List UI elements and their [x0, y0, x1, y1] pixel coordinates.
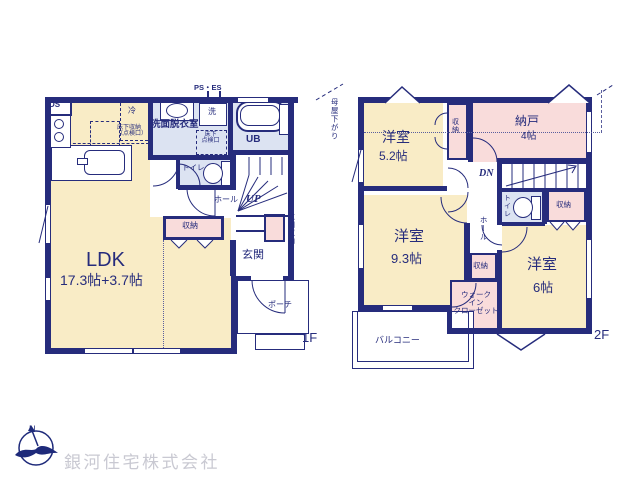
- stairs-down-label: DN: [479, 169, 493, 180]
- entrance-storage-label: 玄関収納: [287, 213, 295, 245]
- bedroom6-size-label: 6帖: [533, 281, 553, 295]
- closet52-label: 収納: [451, 118, 459, 134]
- door-arc-washroom: [153, 160, 179, 186]
- washroom-label: 洗面脱衣室: [151, 120, 199, 130]
- toilet-1f-label: トイレ: [182, 164, 205, 172]
- closet-2f-hall-label: 収納: [473, 262, 488, 270]
- bedroom52-size-label: 5.2帖: [379, 150, 408, 163]
- bath-label: UB: [246, 135, 260, 146]
- door-arc-vestibule-up: [448, 168, 468, 188]
- door-arc-bedroom93: [441, 197, 467, 223]
- corner-window-mark-1f: [39, 206, 48, 243]
- compass-north-label: N: [29, 424, 36, 434]
- closet-1f-label: 収納: [182, 222, 198, 231]
- bedroom93-label: 洋室: [394, 229, 424, 245]
- underfloor-storage-line2: （点検口）: [117, 131, 147, 137]
- company-name: 銀河住宅株式会社: [64, 448, 220, 473]
- floor-plan: N DS 冷 床下収納 （点検口） PS・ES 洗面脱衣室 洗 床下 点検口 U…: [0, 0, 640, 480]
- underfloor-hatch-line2: 点検口: [196, 138, 225, 144]
- roof-window-mark: [497, 334, 545, 350]
- closet-arc-52b: [435, 137, 447, 149]
- underfloor-storage-label: 床下収納 （点検口）: [117, 125, 147, 138]
- roof-window-mark: [385, 87, 420, 103]
- underfloor-hatch-label: 床下 点検口: [196, 132, 225, 145]
- floor1-label: 1F: [302, 331, 317, 345]
- storage-room-label: 納戸: [515, 115, 539, 128]
- stairs-2f: [506, 163, 578, 188]
- ldk-size-label: 17.3帖+3.7帖: [60, 273, 143, 288]
- bedroom6-label: 洋室: [527, 257, 557, 273]
- door-arc-ldk-hall: [187, 188, 215, 216]
- closet-door-mark: [566, 222, 580, 230]
- toilet-2f-label: トイレ: [503, 194, 511, 218]
- ds-label: DS: [49, 101, 60, 110]
- corner-window-mark-2f: [352, 150, 361, 182]
- wic-label: ウォーク イン クローゼット: [448, 291, 504, 315]
- balcony-label: バルコニー: [375, 336, 420, 346]
- toilet-bowl-2f: [513, 197, 533, 218]
- stairs-up-label: UP: [246, 194, 261, 206]
- washer-label: 洗: [208, 108, 216, 117]
- closet-door-mark: [171, 240, 187, 248]
- door-arc-nando: [473, 138, 497, 162]
- compass-logo: N: [15, 424, 58, 465]
- ps-es-label: PS・ES: [194, 84, 222, 92]
- wic-line3: クローゼット: [448, 307, 504, 315]
- porch-label: ポーチ: [268, 301, 292, 310]
- closet-arc-52a: [435, 113, 447, 125]
- door-arc-bedroom6: [502, 227, 527, 252]
- refrigerator-label: 冷: [128, 107, 136, 116]
- ldk-label: LDK: [86, 250, 125, 272]
- closet-door-mark: [197, 240, 213, 248]
- entrance-label: 玄関: [242, 250, 264, 262]
- hall-1f-label: ホール: [214, 196, 238, 205]
- bedroom93-size-label: 9.3帖: [391, 252, 422, 266]
- floor2-label: 2F: [594, 328, 609, 342]
- roof-dash: [597, 85, 613, 95]
- bedroom52-label: 洋室: [382, 130, 410, 145]
- closet-2f-right-label: 収納: [556, 201, 571, 209]
- door-arc-vestibule-down: [448, 192, 468, 212]
- plan-linework: N: [0, 0, 640, 480]
- closet-door-mark: [550, 222, 564, 230]
- hall-2f-label: ホール: [479, 216, 487, 242]
- roof-window-mark: [548, 85, 590, 103]
- storage-room-size-label: 4帖: [521, 132, 537, 143]
- moya-sagari-label: 母屋下がり: [330, 98, 338, 141]
